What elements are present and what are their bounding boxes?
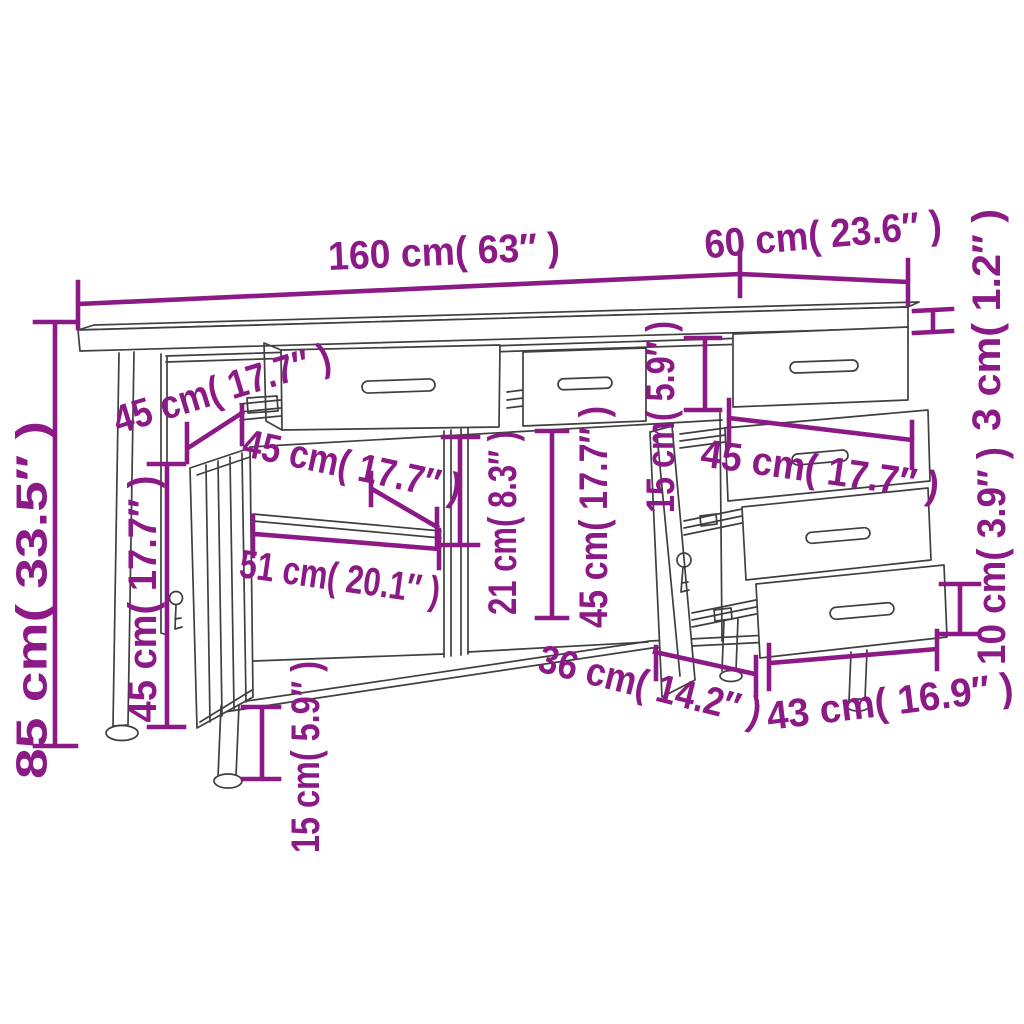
dim-door-width-label: 45 cm( 17.7″ ) (121, 476, 165, 723)
drawer-r4-front (756, 565, 947, 658)
dim-shelf-clearance-label: 21 cm( 8.3″ ) (481, 431, 525, 615)
dim-top-thickness-label: 3 cm( 1.2″ ) (965, 209, 1009, 431)
leg-under-door-foot (214, 774, 242, 788)
drawer-right-top-front (733, 327, 908, 407)
dim-leg-height-label: 15 cm( 5.9″ ) (284, 661, 328, 853)
dim-height-total-label: 85 cm( 33.5″ ) (8, 421, 57, 779)
dim-inner-height-center-line (537, 431, 567, 618)
workbench-dimension-diagram: 160 cm( 63″ ) 60 cm( 23.6″ ) 3 cm( 1.2″ … (0, 0, 1024, 1024)
dim-inner-height-center-label: 45 cm( 17.7″ ) (572, 406, 616, 628)
dimension-diagram-page: 160 cm( 63″ ) 60 cm( 23.6″ ) 3 cm( 1.2″ … (0, 0, 1024, 1024)
dim-base-depth-label: 36 cm( 14.2″ ) (534, 637, 766, 735)
dim-top-thickness-bracket (914, 309, 952, 333)
dim-leg-height-line (243, 707, 279, 779)
drawer-slide-center (507, 390, 523, 408)
center-partition (444, 428, 468, 657)
dim-depth-top-line (740, 260, 908, 304)
left-door-key-head (170, 592, 183, 605)
dim-drawer-front-height-right-line (686, 338, 720, 410)
leg-left-foot (106, 726, 138, 741)
dim-width-total-label: 160 cm( 63″ ) (327, 225, 561, 279)
leg-under-door (218, 705, 239, 777)
dim-shelf-width-label: 51 cm( 20.1″ ) (237, 542, 443, 614)
dim-drawer-front-height-right-label: 15 cm( 5.9″ ) (639, 321, 683, 513)
dim-drawer-depth-right-label: 43 cm( 16.9″ ) (764, 665, 1016, 739)
left-door-key (175, 605, 182, 629)
dim-inner-width-left-label: 45 cm( 17.7″ ) (239, 421, 465, 510)
dim-drawer-inner-height-right-label: 10 cm( 3.9″ ) (970, 447, 1014, 665)
dim-depth-top-label: 60 cm( 23.6″ ) (703, 203, 944, 268)
